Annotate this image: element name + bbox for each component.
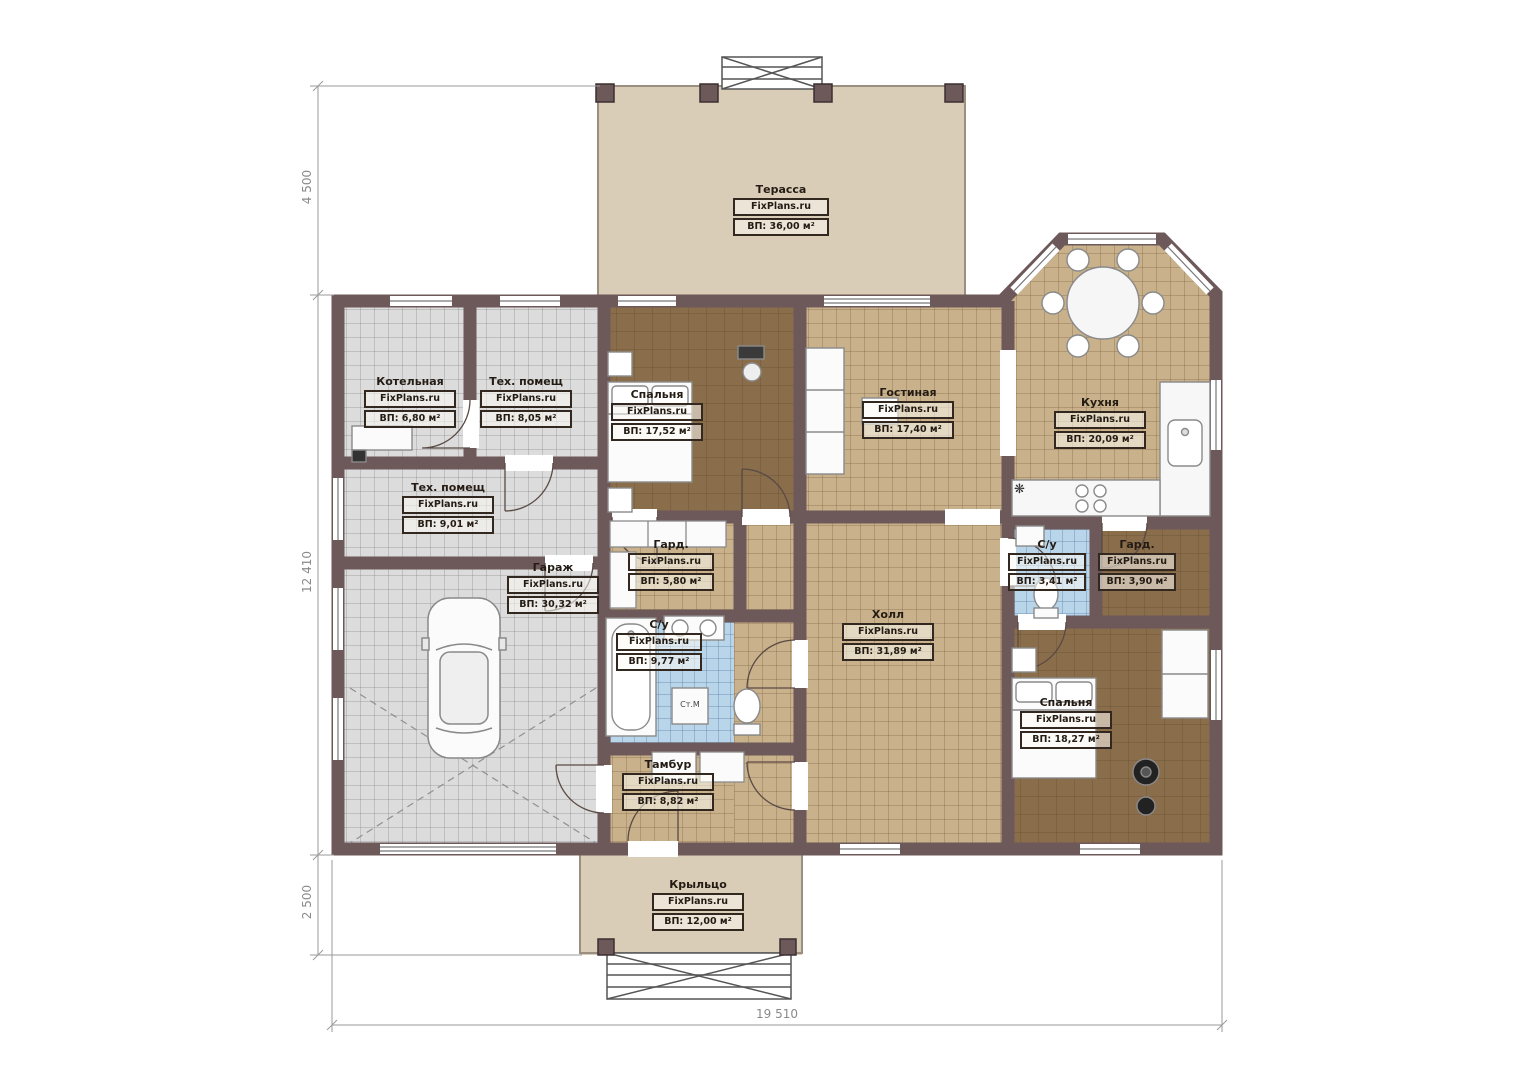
dimension-house-height: 12 410 bbox=[300, 537, 314, 607]
brand-watermark: FixPlans.ru bbox=[1054, 411, 1146, 429]
room-label-bedroom1: Спальня FixPlans.ru ВП: 17,52 м² bbox=[611, 388, 703, 441]
room-label-boiler: Котельная FixPlans.ru ВП: 6,80 м² bbox=[364, 375, 456, 428]
room-area: ВП: 17,52 м² bbox=[611, 423, 703, 441]
plan-drawing bbox=[0, 0, 1528, 1080]
dimension-total-width: 19 510 bbox=[737, 1007, 817, 1021]
room-area: ВП: 3,41 м² bbox=[1008, 573, 1086, 591]
brand-watermark: FixPlans.ru bbox=[622, 773, 714, 791]
brand-watermark: FixPlans.ru bbox=[507, 576, 599, 594]
room-label-garage: Гараж FixPlans.ru ВП: 30,32 м² bbox=[507, 561, 599, 614]
floor-plan: Терасса FixPlans.ru ВП: 36,00 м² Котельн… bbox=[0, 0, 1528, 1080]
brand-watermark: FixPlans.ru bbox=[733, 198, 829, 216]
brand-watermark: FixPlans.ru bbox=[1008, 553, 1086, 571]
room-label-terrace: Терасса FixPlans.ru ВП: 36,00 м² bbox=[733, 183, 829, 236]
room-area: ВП: 9,77 м² bbox=[616, 653, 702, 671]
room-area: ВП: 20,09 м² bbox=[1054, 431, 1146, 449]
room-label-living-room: Гостиная FixPlans.ru ВП: 17,40 м² bbox=[862, 386, 954, 439]
room-label-wardrobe2: Гард. FixPlans.ru ВП: 3,90 м² bbox=[1098, 538, 1176, 591]
brand-watermark: FixPlans.ru bbox=[364, 390, 456, 408]
dimension-porch-depth: 2 500 bbox=[300, 867, 314, 937]
brand-watermark: FixPlans.ru bbox=[652, 893, 744, 911]
room-label-wardrobe1: Гард. FixPlans.ru ВП: 5,80 м² bbox=[628, 538, 714, 591]
porch-stairs bbox=[607, 953, 791, 999]
car bbox=[422, 598, 506, 758]
room-area: ВП: 30,32 м² bbox=[507, 596, 599, 614]
room-area: ВП: 6,80 м² bbox=[364, 410, 456, 428]
brand-watermark: FixPlans.ru bbox=[480, 390, 572, 408]
room-label-vestibule: Тамбур FixPlans.ru ВП: 8,82 м² bbox=[622, 758, 714, 811]
room-label-kitchen: Кухня FixPlans.ru ВП: 20,09 м² bbox=[1054, 396, 1146, 449]
washing-machine-label: Ст.М bbox=[672, 700, 708, 709]
brand-watermark: FixPlans.ru bbox=[862, 401, 954, 419]
kitchen-furniture bbox=[1012, 249, 1210, 516]
room-label-tech1: Тех. помещ FixPlans.ru ВП: 8,05 м² bbox=[480, 375, 572, 428]
room-area: ВП: 8,82 м² bbox=[622, 793, 714, 811]
brand-watermark: FixPlans.ru bbox=[402, 496, 494, 514]
brand-watermark: FixPlans.ru bbox=[1020, 711, 1112, 729]
room-label-tech2: Тех. помещ FixPlans.ru ВП: 9,01 м² bbox=[402, 481, 494, 534]
room-area: ВП: 9,01 м² bbox=[402, 516, 494, 534]
brand-watermark: FixPlans.ru bbox=[1098, 553, 1176, 571]
room-area: ВП: 18,27 м² bbox=[1020, 731, 1112, 749]
brand-watermark: FixPlans.ru bbox=[611, 403, 703, 421]
room-label-porch: Крыльцо FixPlans.ru ВП: 12,00 м² bbox=[652, 878, 744, 931]
dimension-terrace-depth: 4 500 bbox=[300, 152, 314, 222]
room-area: ВП: 36,00 м² bbox=[733, 218, 829, 236]
room-label-bedroom2: Спальня FixPlans.ru ВП: 18,27 м² bbox=[1020, 696, 1112, 749]
room-area: ВП: 31,89 м² bbox=[842, 643, 934, 661]
room-area: ВП: 5,80 м² bbox=[628, 573, 714, 591]
fridge-snowflake-icon: ❋ bbox=[1014, 482, 1025, 497]
room-label-hall: Холл FixPlans.ru ВП: 31,89 м² bbox=[842, 608, 934, 661]
brand-watermark: FixPlans.ru bbox=[616, 633, 702, 651]
room-label-bathroom1: С/у FixPlans.ru ВП: 9,77 м² bbox=[616, 618, 702, 671]
room-area: ВП: 8,05 м² bbox=[480, 410, 572, 428]
room-label-bathroom2: С/у FixPlans.ru ВП: 3,41 м² bbox=[1008, 538, 1086, 591]
terrace-stairs bbox=[722, 57, 822, 89]
room-area: ВП: 12,00 м² bbox=[652, 913, 744, 931]
room-area: ВП: 3,90 м² bbox=[1098, 573, 1176, 591]
brand-watermark: FixPlans.ru bbox=[628, 553, 714, 571]
brand-watermark: FixPlans.ru bbox=[842, 623, 934, 641]
room-area: ВП: 17,40 м² bbox=[862, 421, 954, 439]
